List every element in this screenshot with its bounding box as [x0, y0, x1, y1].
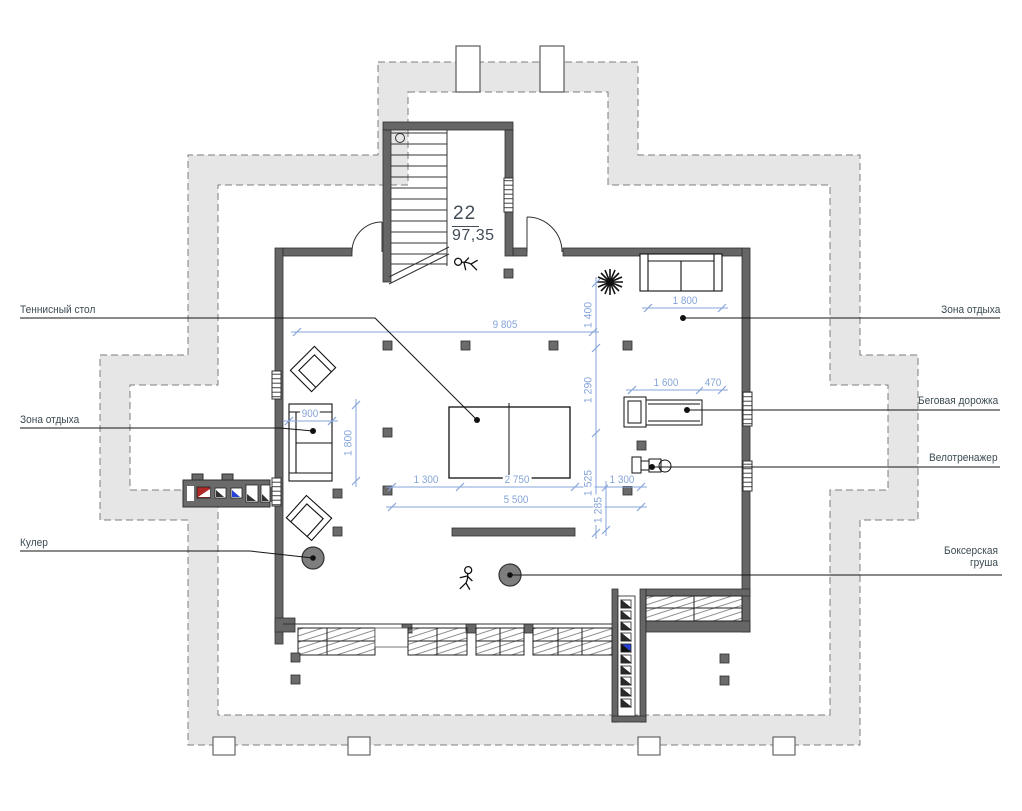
dim-1300-right: 1 300	[608, 475, 636, 486]
dim-900: 900	[300, 409, 320, 420]
armchair-top	[290, 346, 335, 391]
dim-9805: 9 805	[491, 320, 519, 331]
label-cooler: Кулер	[20, 537, 48, 549]
hatched-strip	[646, 596, 742, 621]
floor-plan-drawing	[0, 0, 1022, 811]
plant	[597, 269, 623, 295]
room-tag: 22 97,35	[452, 203, 495, 245]
room-number: 22	[452, 203, 479, 227]
dim-1290: 1 290	[584, 375, 595, 405]
treadmill	[624, 397, 702, 427]
label-exercise-bike: Велотренажер	[929, 452, 998, 464]
staircase-shaft	[618, 596, 635, 716]
dim-5500: 5 500	[502, 495, 530, 506]
dim-1300-left: 1 300	[412, 475, 440, 486]
dim-1285: 1 285	[594, 495, 605, 525]
bench	[452, 528, 575, 536]
dim-1800-sofa: 1 800	[344, 428, 355, 458]
person-figure-bottom	[458, 565, 475, 590]
sofa-top-right	[640, 254, 722, 291]
dim-1600: 1 600	[652, 378, 680, 389]
wardrobes	[298, 628, 612, 655]
dim-1525: 1 525	[584, 468, 595, 498]
armchair-bottom	[286, 495, 331, 540]
tennis-table	[449, 403, 570, 482]
exterior-stair	[183, 474, 278, 507]
label-treadmill: Беговая дорожка	[918, 395, 998, 407]
dim-1800-top: 1 800	[671, 296, 699, 307]
label-rest-zone-left: Зона отдыха	[20, 414, 79, 426]
room-area: 97,35	[452, 227, 495, 244]
person-figure-top	[453, 255, 478, 272]
label-rest-zone-right: Зона отдыха	[941, 304, 1000, 316]
dim-1400: 1 400	[584, 300, 595, 330]
label-tennis-table: Теннисный стол	[20, 304, 95, 316]
label-punching-bag: Боксерская груша	[924, 545, 998, 569]
dim-470: 470	[703, 378, 723, 389]
floor-plan: 22 97,35 Теннисный стол Зона отдыха Куле…	[0, 0, 1022, 811]
dim-2750: 2 750	[503, 475, 531, 486]
